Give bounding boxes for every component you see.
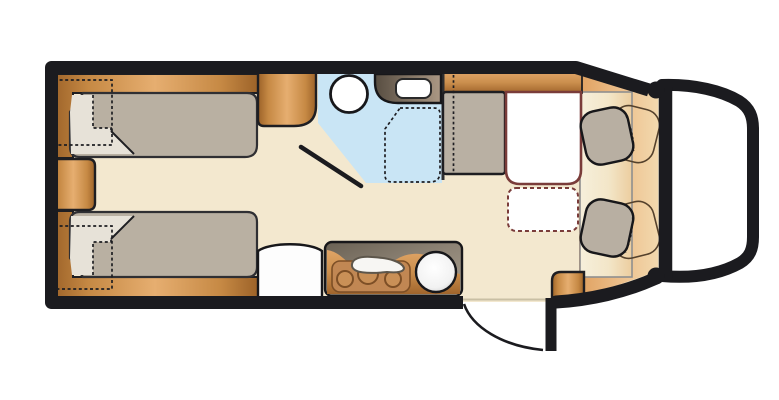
body-joint-bottom	[648, 268, 665, 285]
floorplan-canvas	[0, 0, 779, 400]
side-bench	[443, 92, 505, 174]
table-extension-dashed	[508, 188, 578, 231]
hob-burner-right	[385, 271, 401, 287]
entry-door-swing-arc	[464, 304, 543, 350]
fridge-or-cabinet	[258, 244, 322, 298]
wardrobe	[258, 72, 316, 126]
vehicle-nose-outline	[662, 85, 753, 277]
washbasin	[396, 79, 431, 98]
rear-center-cabinet	[52, 159, 96, 210]
kitchen-block	[325, 242, 462, 296]
sideboard-wood-strip	[440, 72, 582, 93]
table	[506, 92, 581, 184]
kitchen-sink	[416, 252, 456, 292]
body-joint-top	[648, 82, 665, 99]
hob-burner-left	[337, 271, 353, 287]
motorhome-floorplan	[0, 0, 779, 400]
toilet	[331, 76, 368, 113]
